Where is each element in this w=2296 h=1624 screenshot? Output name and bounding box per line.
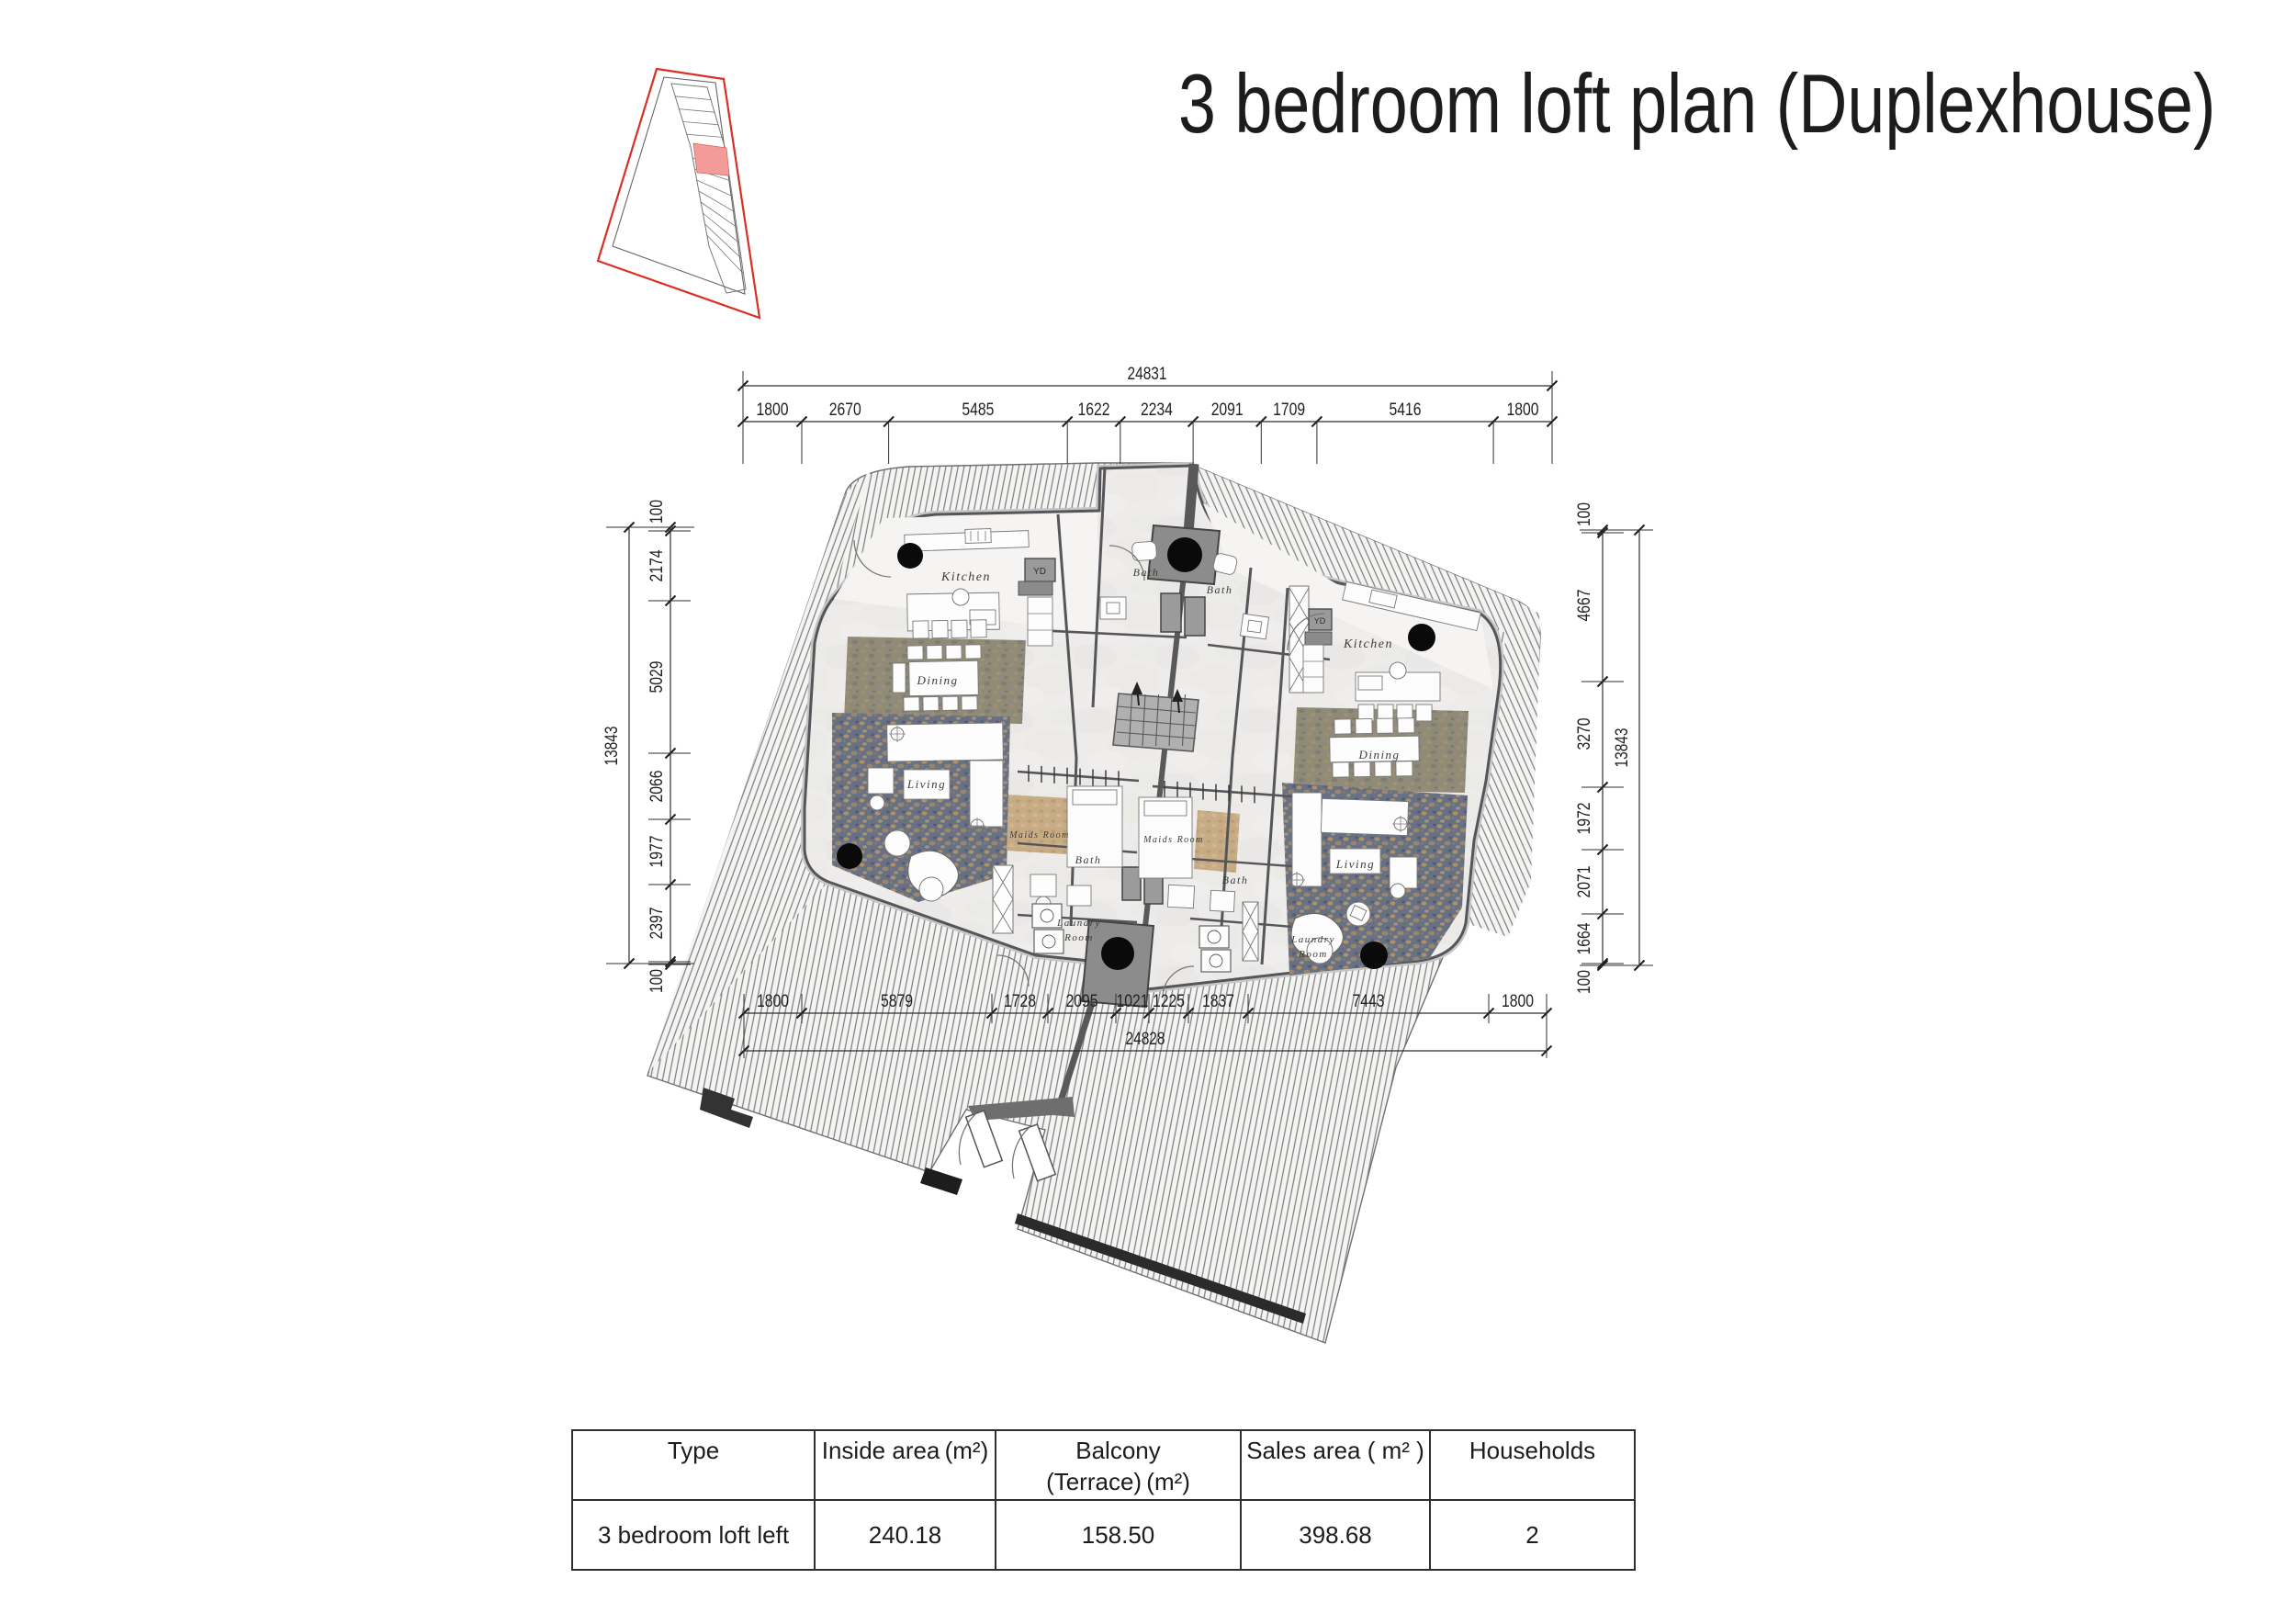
svg-text:Dining: Dining — [1357, 748, 1400, 761]
svg-text:1800: 1800 — [1502, 992, 1534, 1011]
svg-text:Bath: Bath — [1075, 853, 1102, 866]
svg-text:Living: Living — [906, 777, 946, 791]
svg-text:13843: 13843 — [1613, 728, 1632, 768]
svg-text:Bath: Bath — [1133, 566, 1160, 579]
svg-text:100: 100 — [1575, 502, 1594, 526]
svg-text:1800: 1800 — [757, 400, 789, 420]
svg-text:13843: 13843 — [602, 727, 622, 766]
svg-text:Laundry: Laundry — [1290, 934, 1335, 945]
svg-text:1800: 1800 — [1507, 400, 1539, 420]
svg-text:5879: 5879 — [881, 992, 913, 1011]
svg-text:1728: 1728 — [1004, 992, 1036, 1011]
svg-text:5485: 5485 — [962, 400, 994, 420]
svg-text:Dining: Dining — [916, 673, 958, 687]
svg-text:5416: 5416 — [1390, 400, 1422, 420]
svg-text:Kitchen: Kitchen — [1343, 637, 1393, 651]
svg-text:5029: 5029 — [647, 661, 667, 694]
svg-text:1622: 1622 — [1078, 400, 1110, 420]
svg-text:2071: 2071 — [1575, 866, 1594, 898]
svg-text:1800: 1800 — [757, 992, 789, 1011]
svg-text:Laundry: Laundry — [1056, 918, 1101, 929]
svg-text:7443: 7443 — [1353, 992, 1385, 1011]
svg-text:4667: 4667 — [1575, 590, 1594, 622]
svg-text:1972: 1972 — [1575, 803, 1594, 835]
svg-text:1664: 1664 — [1575, 922, 1594, 954]
svg-text:24828: 24828 — [1126, 1030, 1165, 1049]
svg-text:2397: 2397 — [647, 908, 667, 940]
svg-text:3270: 3270 — [1575, 718, 1594, 750]
svg-text:2174: 2174 — [647, 549, 667, 581]
svg-text:1709: 1709 — [1273, 400, 1305, 420]
svg-text:100: 100 — [647, 500, 667, 524]
svg-text:YD: YD — [1033, 567, 1046, 577]
svg-text:Kitchen: Kitchen — [940, 570, 991, 584]
svg-text:100: 100 — [647, 969, 667, 993]
svg-text:1837: 1837 — [1202, 992, 1234, 1011]
svg-text:2091: 2091 — [1211, 400, 1244, 420]
svg-text:24831: 24831 — [1128, 365, 1167, 384]
svg-text:Living: Living — [1335, 857, 1375, 871]
svg-text:Bath: Bath — [1207, 583, 1233, 596]
svg-text:1225: 1225 — [1153, 992, 1185, 1011]
svg-text:YD: YD — [1314, 616, 1326, 626]
svg-text:2234: 2234 — [1141, 400, 1173, 420]
svg-text:1977: 1977 — [647, 836, 667, 868]
svg-text:1021: 1021 — [1117, 992, 1149, 1011]
svg-text:Room: Room — [1298, 949, 1328, 960]
svg-text:Maids Room: Maids Room — [1142, 835, 1204, 845]
svg-text:Room: Room — [1064, 932, 1094, 943]
svg-text:2095: 2095 — [1066, 992, 1098, 1011]
svg-text:2670: 2670 — [829, 400, 861, 420]
svg-text:100: 100 — [1575, 970, 1594, 994]
svg-text:Bath: Bath — [1222, 874, 1249, 886]
svg-text:2066: 2066 — [647, 771, 667, 803]
svg-text:Maids Room: Maids Room — [1008, 830, 1070, 840]
